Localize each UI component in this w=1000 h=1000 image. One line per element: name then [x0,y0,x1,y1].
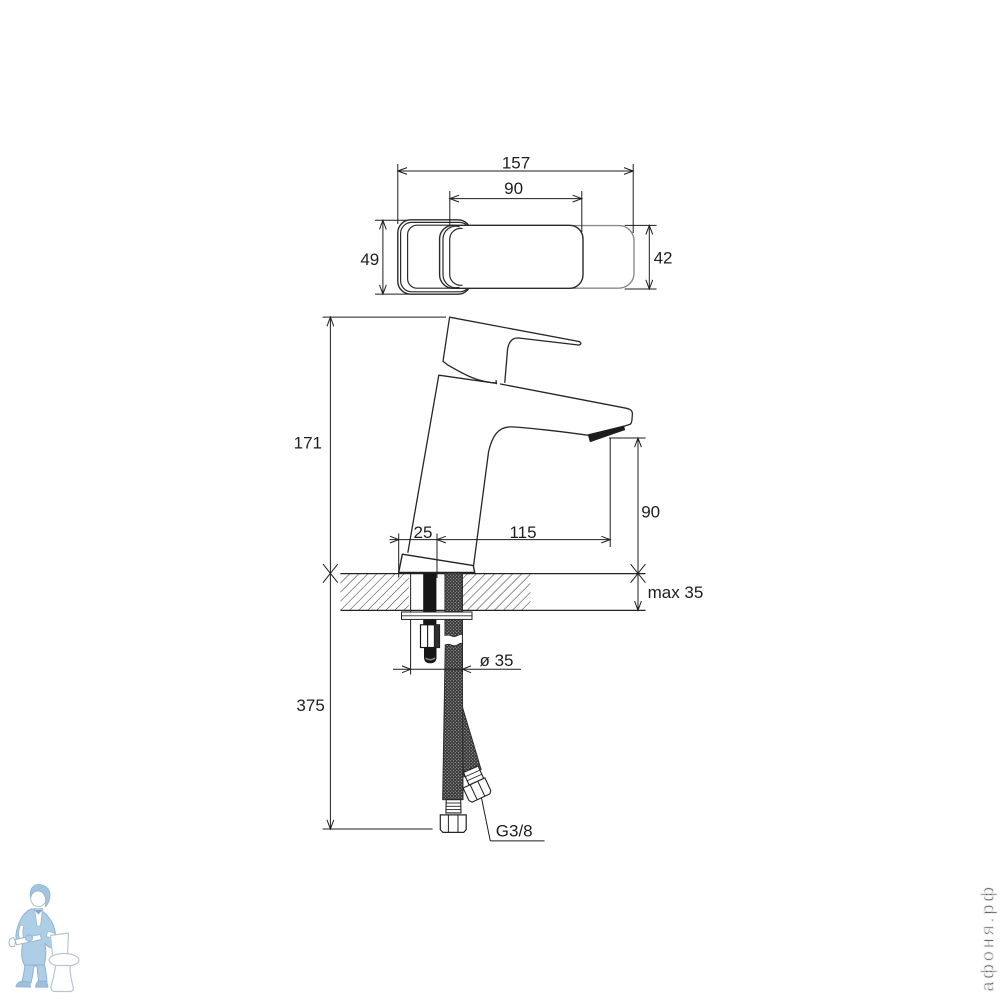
svg-text:42: 42 [654,249,673,268]
svg-text:375: 375 [296,696,324,715]
svg-text:25: 25 [414,523,433,542]
svg-text:90: 90 [504,179,523,198]
svg-text:115: 115 [509,523,536,542]
svg-text:90: 90 [641,503,660,522]
svg-text:G3/8: G3/8 [496,822,533,841]
svg-text:афоня.рф: афоня.рф [978,884,998,992]
svg-text:ø 35: ø 35 [479,651,513,670]
svg-text:157: 157 [502,153,530,172]
svg-text:49: 49 [360,250,379,269]
svg-text:max 35: max 35 [648,583,704,602]
svg-text:171: 171 [294,433,322,452]
